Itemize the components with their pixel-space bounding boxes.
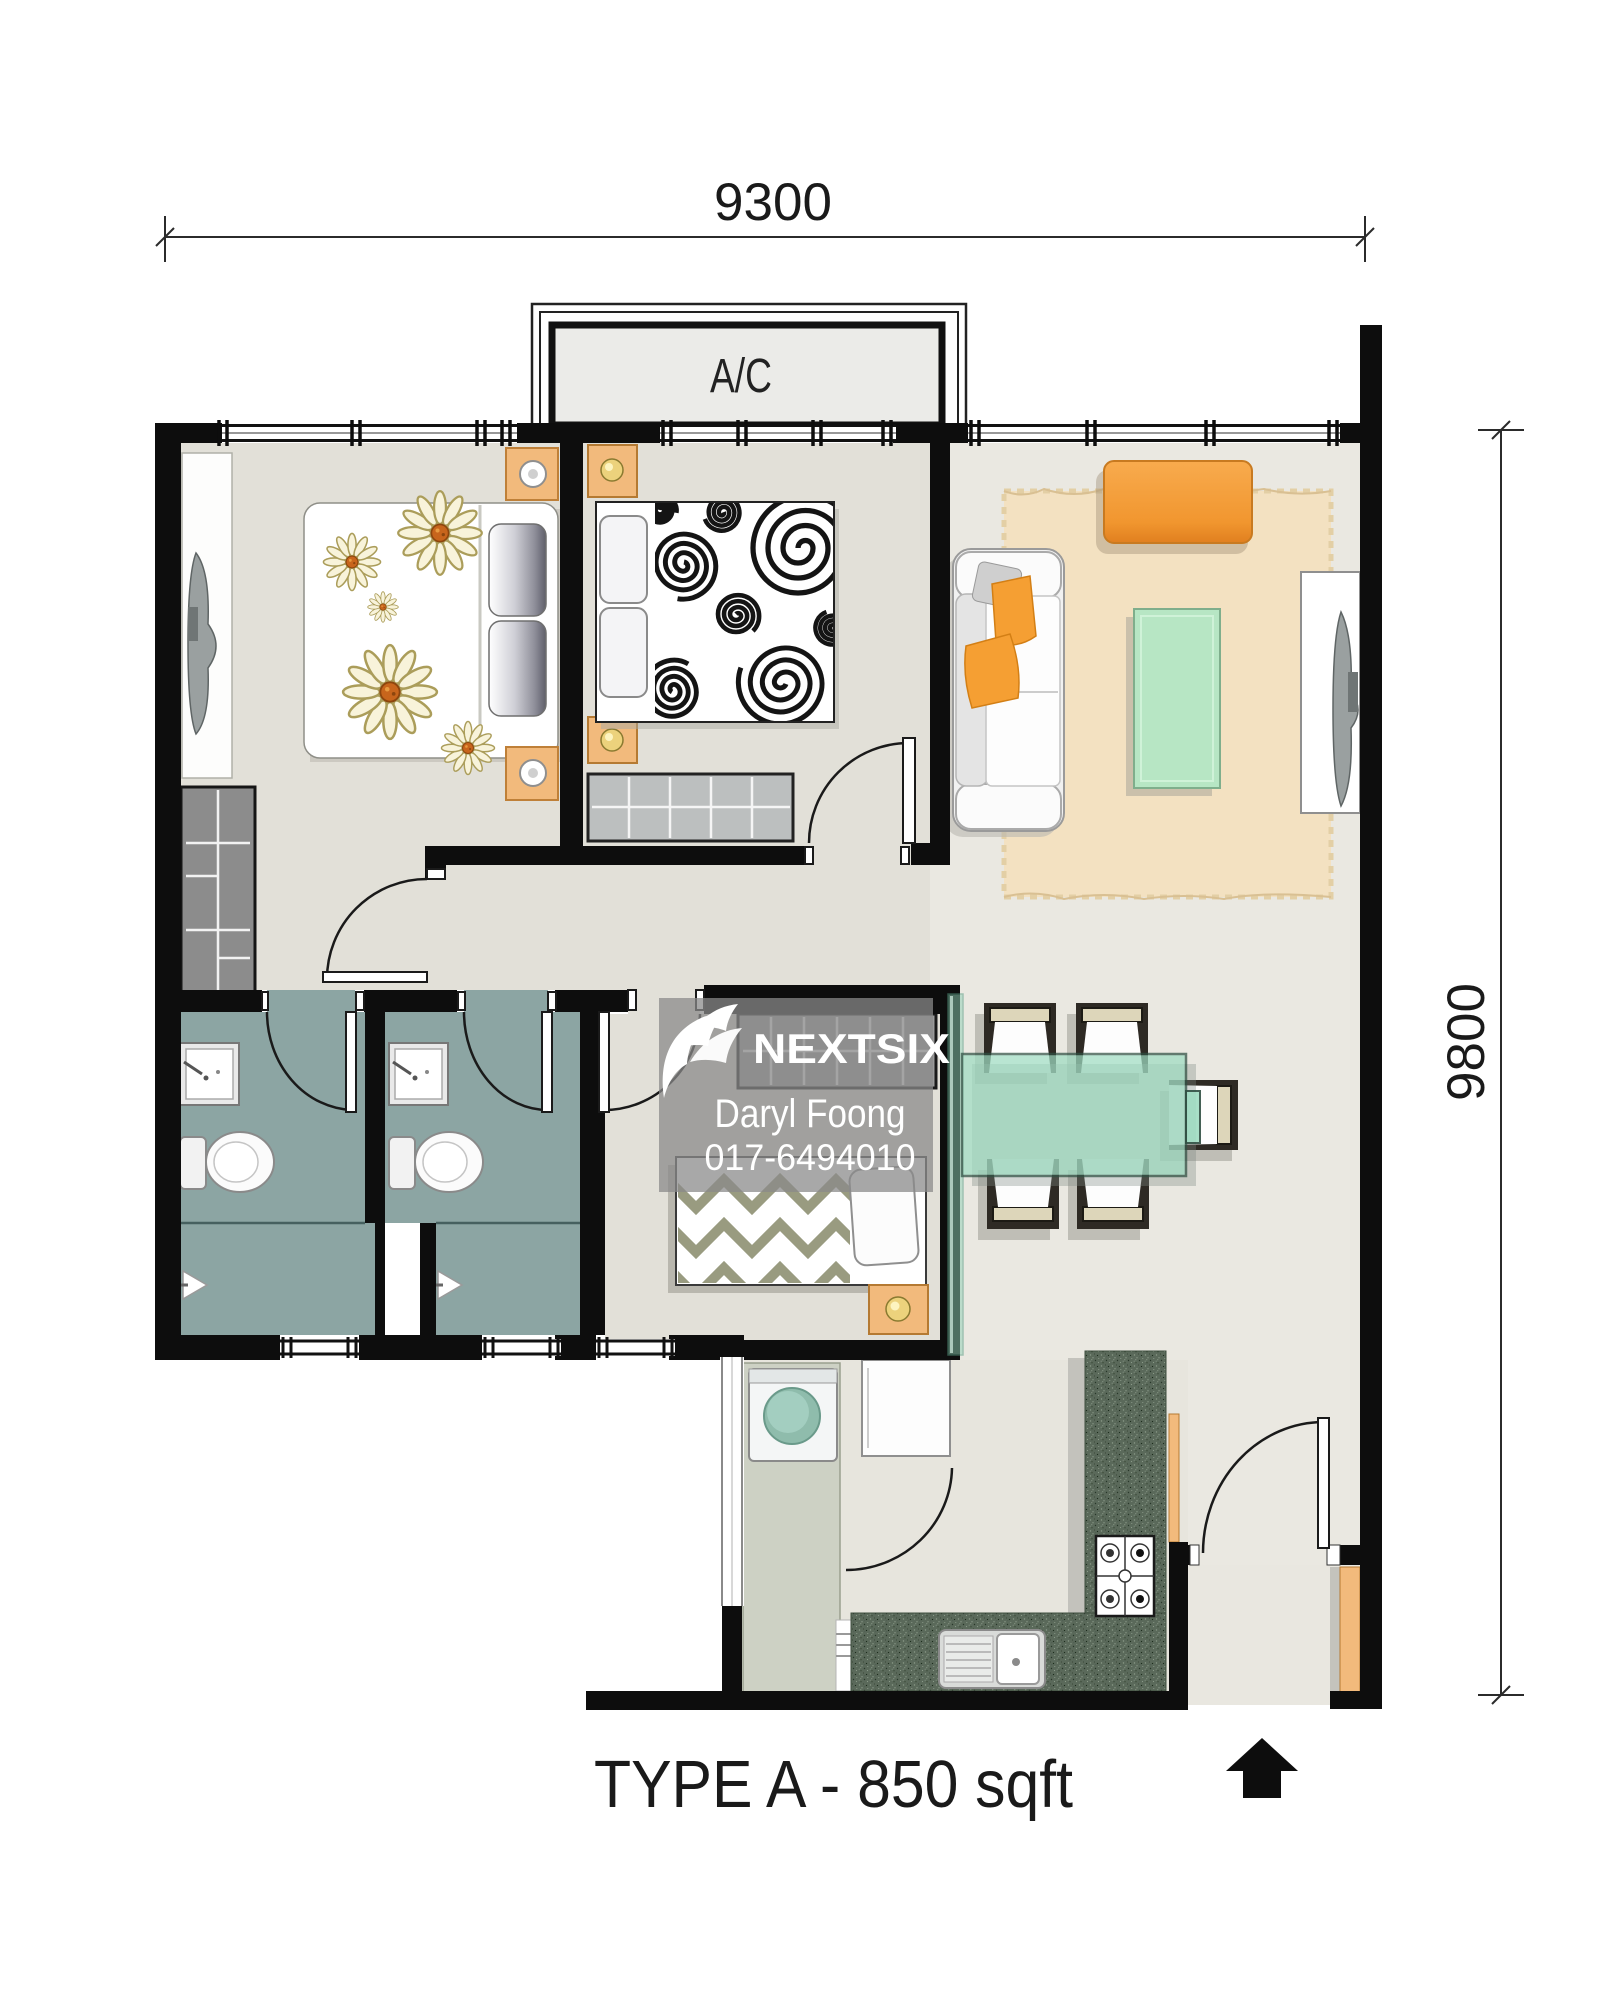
svg-text:9300: 9300 (714, 173, 832, 232)
svg-text:TYPE A - 850 sqft: TYPE A - 850 sqft (594, 1747, 1073, 1822)
svg-text:NEXTSIX: NEXTSIX (753, 1025, 950, 1072)
svg-text:017-6494010: 017-6494010 (705, 1137, 916, 1178)
svg-text:A/C: A/C (710, 350, 772, 403)
svg-text:9800: 9800 (1437, 983, 1496, 1101)
svg-text:Daryl Foong: Daryl Foong (715, 1092, 906, 1136)
